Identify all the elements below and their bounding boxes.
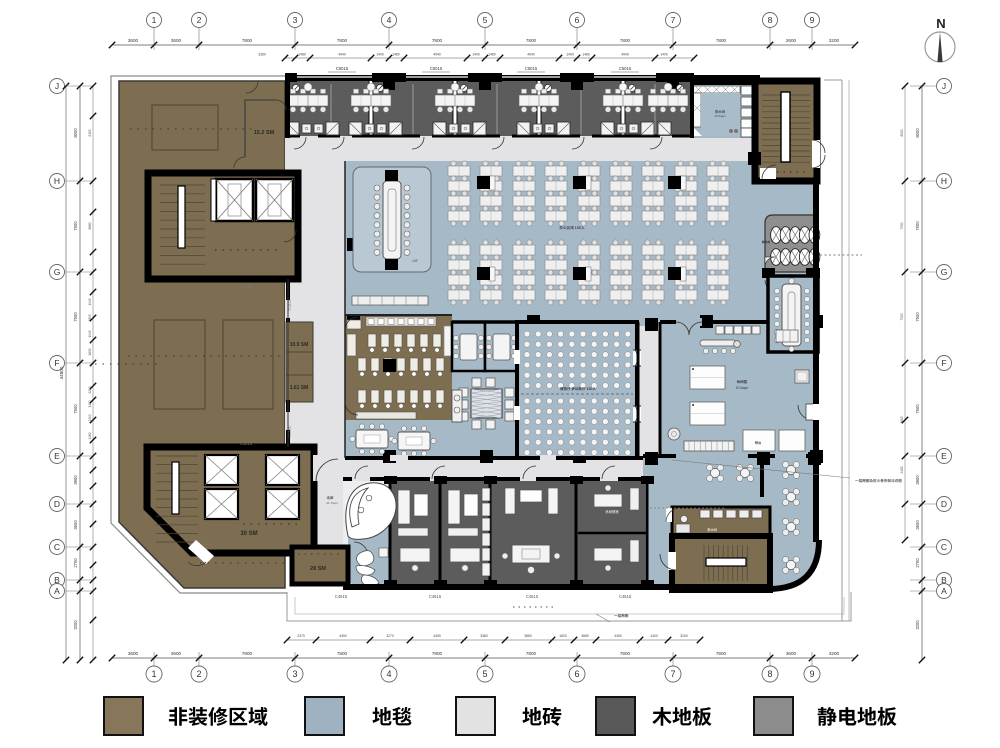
svg-text:4: 4	[387, 15, 392, 25]
svg-text:4940: 4940	[621, 53, 629, 57]
svg-text:7800: 7800	[526, 651, 537, 656]
svg-text:4940: 4940	[527, 53, 535, 57]
svg-text:3680: 3680	[581, 634, 589, 638]
svg-text:3600: 3600	[128, 651, 139, 656]
svg-text:8000: 8000	[73, 128, 78, 138]
svg-text:1.61 SM: 1.61 SM	[290, 385, 309, 391]
svg-text:3200: 3200	[829, 38, 840, 43]
svg-text:4940: 4940	[338, 53, 346, 57]
svg-text:4940: 4940	[433, 53, 441, 57]
svg-text:C: C	[54, 542, 60, 552]
svg-text:1400: 1400	[472, 53, 480, 57]
svg-text:7500: 7500	[915, 221, 920, 231]
svg-text:5: 5	[482, 669, 487, 679]
svg-text:8000: 8000	[915, 128, 920, 138]
svg-text:28 SM: 28 SM	[310, 566, 326, 572]
svg-text:E: E	[941, 451, 947, 461]
svg-text:3200: 3200	[829, 651, 840, 656]
svg-text:7800: 7800	[242, 38, 253, 43]
svg-text:7500: 7500	[73, 312, 78, 322]
svg-text:3880: 3880	[524, 634, 532, 638]
svg-text:2700: 2700	[73, 558, 78, 568]
svg-text:G: G	[941, 267, 948, 277]
svg-text:C4515: C4515	[429, 594, 442, 599]
svg-text:7800: 7800	[716, 651, 727, 656]
svg-text:C5015: C5015	[619, 66, 632, 71]
svg-text:18F: 18F	[412, 259, 418, 263]
svg-text:8000: 8000	[900, 129, 904, 136]
svg-text:A: A	[54, 586, 60, 596]
svg-text:4450: 4450	[614, 634, 622, 638]
svg-text:5: 5	[483, 15, 488, 25]
svg-text:4450: 4450	[339, 634, 347, 638]
svg-text:16.5sqm: 16.5sqm	[714, 114, 726, 118]
svg-text:3: 3	[293, 15, 298, 25]
svg-text:9: 9	[810, 15, 815, 25]
svg-text:1: 1	[152, 15, 157, 25]
svg-text:1945: 1945	[88, 298, 92, 305]
svg-text:2400: 2400	[900, 466, 904, 473]
svg-text:7800: 7800	[337, 38, 348, 43]
svg-text:3600: 3600	[171, 38, 182, 43]
svg-text:7800: 7800	[620, 651, 631, 656]
svg-text:3900: 3900	[73, 475, 78, 485]
svg-text:C: C	[941, 542, 947, 552]
svg-text:10.9 SM: 10.9 SM	[290, 342, 309, 348]
svg-text:1945: 1945	[88, 330, 92, 337]
svg-text:3200: 3200	[680, 634, 688, 638]
svg-text:6: 6	[574, 669, 579, 679]
svg-text:1400: 1400	[650, 634, 658, 638]
svg-text:3200: 3200	[73, 620, 78, 630]
svg-text:1480: 1480	[298, 53, 306, 57]
svg-text:7800: 7800	[432, 651, 443, 656]
svg-text:1830: 1830	[88, 348, 92, 355]
svg-text:9: 9	[809, 669, 814, 679]
svg-text:7500: 7500	[900, 313, 904, 320]
svg-text:C1215: C1215	[240, 284, 253, 289]
svg-text:1480: 1480	[392, 53, 400, 57]
svg-text:E: E	[54, 451, 60, 461]
svg-text:2: 2	[196, 669, 201, 679]
svg-text:15.2 SM: 15.2 SM	[254, 130, 275, 136]
svg-text:41.7sqm: 41.7sqm	[326, 501, 338, 505]
svg-text:7: 7	[670, 669, 675, 679]
svg-text:C5015: C5015	[525, 66, 538, 71]
svg-text:7800: 7800	[242, 651, 253, 656]
svg-text:3600: 3600	[915, 520, 920, 530]
svg-text:6150: 6150	[88, 129, 92, 136]
svg-text:7800: 7800	[432, 38, 443, 43]
svg-text:8: 8	[767, 669, 772, 679]
svg-text:2: 2	[197, 15, 202, 25]
svg-text:3600: 3600	[73, 520, 78, 530]
svg-text:3270: 3270	[386, 634, 394, 638]
svg-text:J: J	[55, 81, 59, 91]
svg-text:7800: 7800	[337, 651, 348, 656]
svg-text:67.6sqm: 67.6sqm	[736, 386, 749, 390]
svg-text:8880: 8880	[88, 222, 92, 229]
svg-text:1480: 1480	[582, 53, 590, 57]
svg-text:4450: 4450	[433, 634, 441, 638]
svg-text:3380: 3380	[480, 634, 488, 638]
svg-text:C4515: C4515	[526, 594, 539, 599]
svg-text:2700: 2700	[915, 558, 920, 568]
svg-text:2600: 2600	[786, 38, 797, 43]
svg-text:7: 7	[671, 15, 676, 25]
svg-text:D: D	[941, 499, 947, 509]
svg-text:1480: 1480	[88, 432, 92, 439]
svg-text:6: 6	[575, 15, 580, 25]
svg-text:44800: 44800	[59, 366, 64, 379]
svg-text:C1215: C1215	[288, 299, 292, 310]
svg-text:A: A	[941, 586, 947, 596]
svg-text:7500: 7500	[915, 312, 920, 322]
svg-text:3600: 3600	[786, 651, 797, 656]
svg-text:7500: 7500	[915, 404, 920, 414]
svg-text:D: D	[54, 499, 60, 509]
svg-text:7500: 7500	[73, 404, 78, 414]
svg-text:3: 3	[292, 669, 297, 679]
svg-text:7800: 7800	[620, 38, 631, 43]
svg-text:30 SM: 30 SM	[240, 531, 257, 537]
svg-text:H: H	[941, 176, 947, 186]
svg-text:C1215: C1215	[288, 426, 292, 437]
svg-text:C4515: C4515	[335, 594, 348, 599]
svg-text:7800: 7800	[716, 38, 727, 43]
svg-text:3350: 3350	[258, 53, 266, 57]
svg-text:7800: 7800	[526, 38, 537, 43]
svg-text:3900: 3900	[915, 475, 920, 485]
svg-text:C5015: C5015	[336, 66, 349, 71]
svg-text:N: N	[936, 16, 945, 31]
svg-text:C5015: C5015	[430, 66, 443, 71]
svg-text:1480: 1480	[488, 53, 496, 57]
svg-text:3200: 3200	[915, 620, 920, 630]
svg-text:F: F	[941, 358, 946, 368]
svg-text:H: H	[54, 176, 60, 186]
svg-text:1820: 1820	[559, 634, 567, 638]
svg-text:J: J	[942, 81, 946, 91]
svg-text:1: 1	[151, 669, 156, 679]
svg-text:4: 4	[386, 669, 391, 679]
svg-text:F: F	[54, 358, 59, 368]
svg-text:8: 8	[768, 15, 773, 25]
svg-text:3600: 3600	[128, 38, 139, 43]
svg-text:G: G	[54, 267, 61, 277]
svg-text:1400: 1400	[566, 53, 574, 57]
svg-text:7500: 7500	[900, 222, 904, 229]
svg-text:1400: 1400	[376, 53, 384, 57]
svg-text:1400: 1400	[660, 53, 668, 57]
svg-text:C4515: C4515	[619, 594, 632, 599]
svg-text:7500: 7500	[73, 221, 78, 231]
svg-text:C1215: C1215	[240, 441, 253, 446]
svg-text:3600: 3600	[171, 651, 182, 656]
svg-text:2370: 2370	[297, 634, 305, 638]
svg-text:2210: 2210	[88, 414, 92, 421]
